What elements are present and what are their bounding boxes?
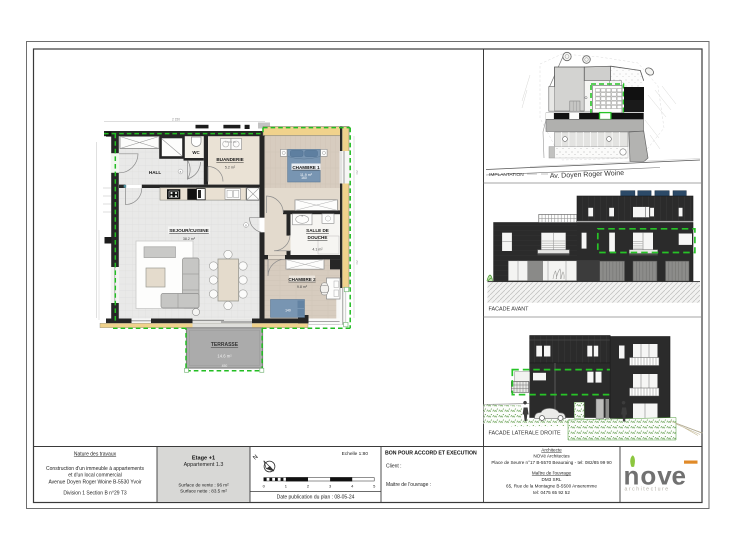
svg-text:65, Rue de la Montagne B-5500: 65, Rue de la Montagne B-5500 Anseremme [506, 484, 597, 489]
svg-text:BON POUR ACCORD ET EXECUTION: BON POUR ACCORD ET EXECUTION [385, 451, 477, 457]
svg-text:4.1 m²: 4.1 m² [312, 248, 323, 252]
svg-text:250: 250 [355, 170, 359, 175]
svg-text:Date publication du plan : 08-: Date publication du plan : 08-05-24 [277, 495, 355, 501]
svg-text:Construction d'un immeuble à a: Construction d'un immeuble à appartement… [46, 466, 144, 472]
svg-text:Place de Seurre n°17 B-5570 Be: Place de Seurre n°17 B-5570 Beauraing - … [491, 460, 612, 465]
svg-text:9.8 m²: 9.8 m² [297, 285, 308, 289]
svg-text:450: 450 [222, 364, 228, 368]
svg-text:Echelle 1:80: Echelle 1:80 [342, 451, 369, 457]
svg-text:CHAMBRE 2: CHAMBRE 2 [288, 277, 316, 282]
svg-text:FACADE AVANT: FACADE AVANT [489, 307, 530, 313]
svg-text:SALLE DE: SALLE DE [306, 228, 329, 233]
svg-text:DOUCHE: DOUCHE [308, 235, 328, 240]
svg-text:14.6 m²: 14.6 m² [217, 354, 232, 359]
svg-text:WC: WC [192, 150, 200, 155]
svg-text:38.2 m²: 38.2 m² [183, 237, 196, 241]
svg-text:e: e [672, 461, 686, 491]
svg-text:CHAMBRE 1: CHAMBRE 1 [292, 165, 320, 170]
svg-text:FACADE LATERALE DROITE: FACADE LATERALE DROITE [489, 431, 561, 437]
svg-text:DM3 SRL: DM3 SRL [542, 477, 562, 482]
svg-text:NOVé Architectes: NOVé Architectes [533, 454, 570, 459]
svg-text:Surface nette : 83.5 m²: Surface nette : 83.5 m² [180, 489, 227, 494]
svg-text:Division 1 Section B n°29 T3: Division 1 Section B n°29 T3 [63, 491, 127, 497]
svg-text:5.2 m²: 5.2 m² [225, 166, 236, 170]
svg-text:11.9 m²: 11.9 m² [300, 173, 313, 177]
svg-text:TERRASSE: TERRASSE [211, 342, 239, 348]
svg-text:HALL: HALL [149, 170, 161, 175]
svg-text:2 150: 2 150 [172, 118, 180, 122]
svg-text:Avenue Doyen Roger Woine B-553: Avenue Doyen Roger Woine B-5530 Yvoir [48, 480, 141, 486]
svg-text:Maître de l'ouvrage: Maître de l'ouvrage [532, 471, 572, 476]
svg-text:Architecte: Architecte [541, 448, 562, 453]
svg-text:Etage +1: Etage +1 [192, 456, 215, 462]
svg-text:tel: 0475 65 92 52: tel: 0475 65 92 52 [533, 490, 570, 495]
svg-text:5 236 ML: 5 236 ML [225, 140, 237, 144]
svg-text:SEJOUR/CUISINE: SEJOUR/CUISINE [169, 228, 209, 233]
svg-text:IMPLANTATION: IMPLANTATION [489, 172, 524, 178]
svg-text:architecture: architecture [625, 487, 670, 493]
svg-text:Nature des travaux: Nature des travaux [74, 452, 117, 458]
svg-text:Surface de vente : 96 m²: Surface de vente : 96 m² [178, 483, 229, 488]
svg-text:et d'un local commercial: et d'un local commercial [68, 473, 121, 479]
svg-text:140: 140 [285, 309, 291, 313]
svg-text:BUANDERIE: BUANDERIE [216, 157, 243, 162]
svg-text:Maitre de l'ouvrage :: Maitre de l'ouvrage : [386, 482, 431, 488]
svg-text:Appartement 1.3: Appartement 1.3 [184, 462, 224, 468]
svg-text:Client :: Client : [386, 464, 402, 470]
svg-text:250: 250 [355, 260, 359, 265]
